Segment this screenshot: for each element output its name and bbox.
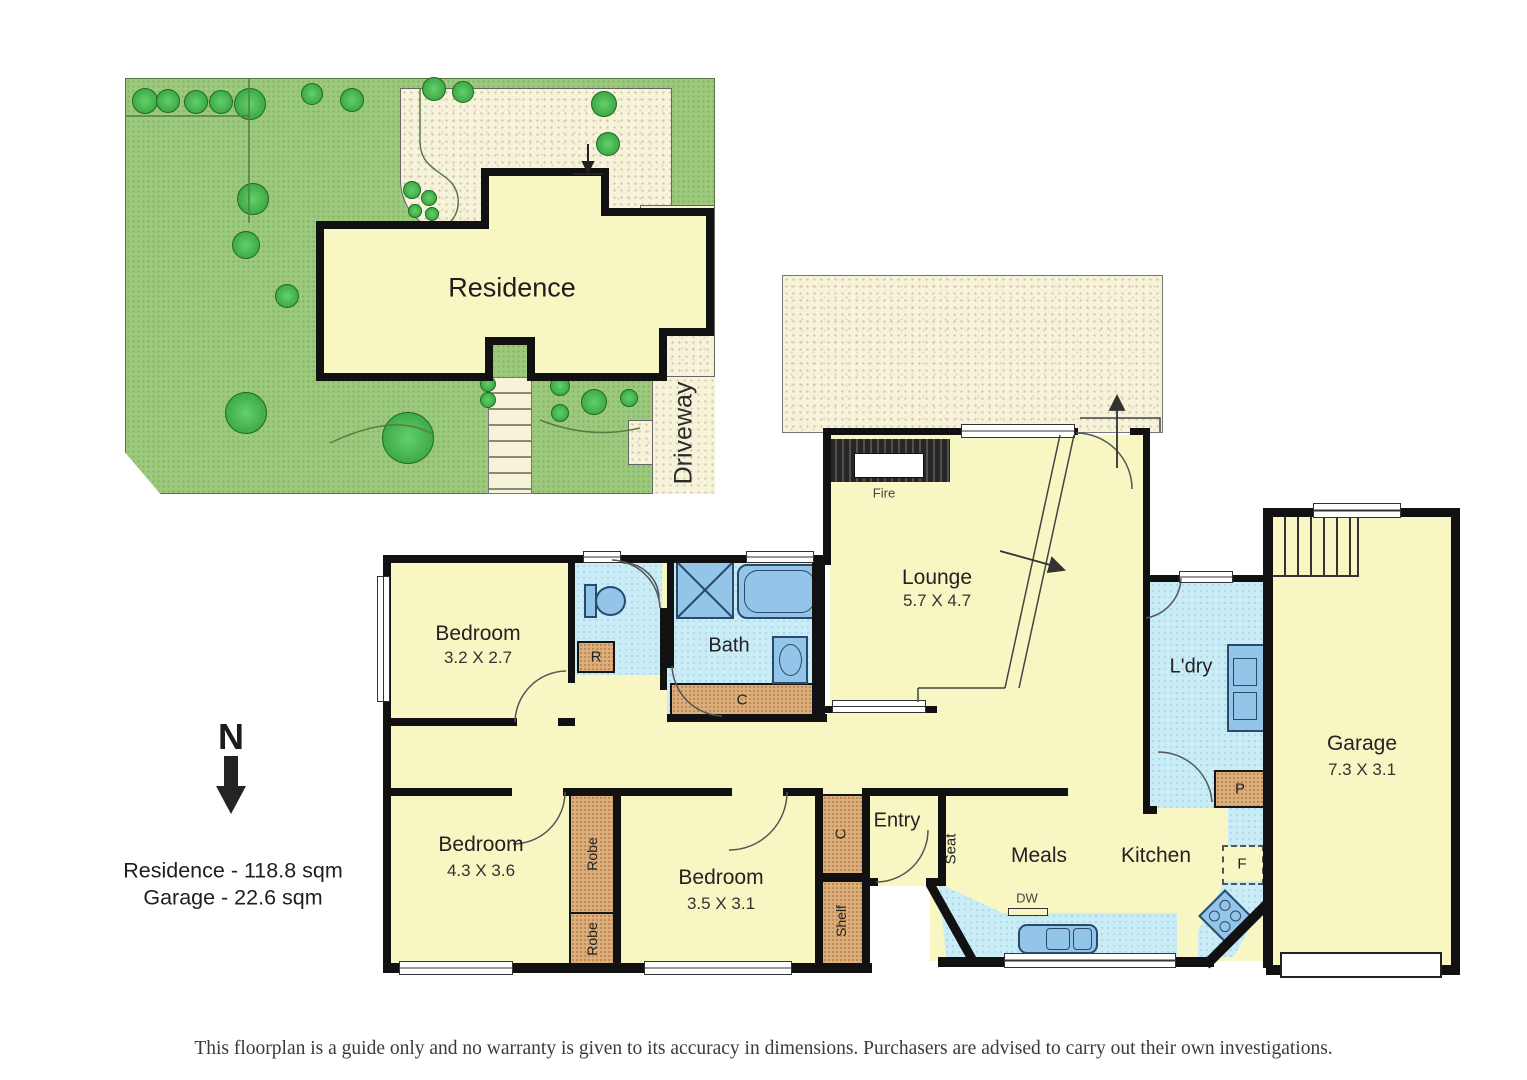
tree-icon — [452, 81, 474, 103]
tree-icon — [550, 376, 570, 396]
trough-bowl1 — [1233, 658, 1257, 686]
tree-icon — [591, 91, 617, 117]
north-label: N — [218, 716, 244, 758]
window — [399, 961, 513, 975]
floorplan-canvas: Residence Driveway N Residence - 118.8 s… — [0, 0, 1527, 1080]
window — [644, 961, 792, 975]
bedroom1-label: Bedroom — [435, 622, 520, 646]
bedroom2-dims: 4.3 X 3.6 — [447, 861, 515, 881]
disclaimer-text: This floorplan is a guide only and no wa… — [0, 1038, 1527, 1060]
wall — [1451, 508, 1460, 975]
trough-bowl2 — [1233, 692, 1257, 720]
tree-icon — [209, 90, 233, 114]
window — [1313, 503, 1401, 518]
tree-icon — [340, 88, 364, 112]
window — [961, 424, 1075, 438]
bedroom3-dims: 3.5 X 3.1 — [687, 894, 755, 914]
tree-icon — [184, 90, 208, 114]
entry-label: Entry — [874, 810, 921, 833]
tree-icon — [156, 89, 180, 113]
wall — [862, 788, 1068, 796]
tree-icon — [422, 77, 446, 101]
dishwasher-ledge — [1008, 908, 1048, 916]
entry-cupboard-label: C — [833, 829, 850, 840]
tree-icon — [382, 412, 434, 464]
garage-door — [1280, 952, 1442, 978]
wall — [1143, 806, 1157, 814]
tree-icon — [232, 231, 260, 259]
window — [377, 576, 390, 702]
wall — [1173, 957, 1214, 967]
basin-bowl — [779, 644, 802, 676]
wall — [660, 608, 667, 690]
wall — [862, 878, 878, 886]
north-arrow — [216, 756, 246, 814]
bedroom1-dims: 3.2 X 2.7 — [444, 648, 512, 668]
meals-label: Meals — [1011, 844, 1067, 868]
driveway-label: Driveway — [670, 382, 699, 485]
wall — [926, 878, 940, 886]
site-residence-label: Residence — [448, 273, 576, 304]
tree-icon — [596, 132, 620, 156]
tree-icon — [480, 376, 496, 392]
garage-label: Garage — [1327, 732, 1397, 756]
wall — [667, 714, 827, 722]
tree-icon — [301, 83, 323, 105]
residence-area-text: Residence - 118.8 sqm — [123, 859, 343, 884]
patio — [782, 275, 1163, 433]
pantry-label: P — [1235, 781, 1245, 798]
fireplace-label: Fire — [873, 486, 895, 501]
tree-icon — [234, 88, 266, 120]
site-paving-notch — [628, 420, 654, 465]
wall — [620, 788, 732, 796]
fridge-label: F — [1237, 856, 1246, 873]
kitchen-label: Kitchen — [1121, 844, 1191, 868]
wall — [558, 718, 575, 726]
window — [1004, 953, 1176, 968]
window — [746, 551, 814, 563]
window — [832, 700, 926, 713]
wall — [938, 957, 1010, 967]
tree-icon — [225, 392, 267, 434]
sink-bowl2 — [1073, 928, 1092, 950]
wall — [383, 718, 517, 726]
seat-label: Seat — [943, 834, 960, 865]
bathtub-inner — [744, 570, 815, 613]
tree-icon — [132, 88, 158, 114]
shower — [676, 561, 734, 619]
wall — [812, 556, 825, 714]
wall — [383, 788, 512, 796]
site-paving — [400, 88, 672, 235]
wall — [1263, 508, 1273, 968]
lounge-dims: 5.7 X 4.7 — [903, 591, 971, 611]
wall — [823, 435, 831, 565]
garage-dims: 7.3 X 3.1 — [1328, 760, 1396, 780]
tree-icon — [581, 389, 607, 415]
tree-icon — [421, 190, 437, 206]
tree-icon — [551, 404, 569, 422]
wall — [1143, 428, 1150, 584]
wall — [613, 794, 621, 970]
lounge-label: Lounge — [902, 566, 972, 590]
window — [583, 551, 621, 563]
wall — [667, 556, 674, 668]
garage-area-text: Garage - 22.6 sqm — [143, 886, 322, 911]
robe2-label: Robe — [584, 922, 600, 955]
window — [1179, 571, 1233, 583]
robe1-label: Robe — [584, 837, 600, 870]
bath-label: Bath — [708, 635, 749, 658]
sink-bowl1 — [1046, 928, 1070, 950]
kitchen-bench-right — [1228, 806, 1263, 846]
shelf-label: Shelf — [833, 905, 849, 937]
bedroom2-label: Bedroom — [438, 833, 523, 857]
wall — [1143, 582, 1150, 810]
wall — [568, 563, 575, 683]
tree-icon — [425, 207, 439, 221]
tree-icon — [403, 181, 421, 199]
laundry-label: L'dry — [1170, 656, 1213, 679]
tree-icon — [275, 284, 299, 308]
bath-cupboard-label: C — [737, 692, 748, 709]
tree-icon — [620, 389, 638, 407]
entry-porch-notch — [870, 886, 930, 963]
site-paving-right — [640, 205, 715, 377]
wall — [783, 788, 817, 796]
fireplace-hearth — [854, 453, 924, 478]
toilet-bowl — [595, 586, 626, 616]
tree-icon — [480, 392, 496, 408]
tree-icon — [408, 204, 422, 218]
dishwasher-label: DW — [1016, 891, 1038, 906]
garage-stairs — [1273, 517, 1359, 577]
bedroom3-label: Bedroom — [678, 866, 763, 890]
robe-r-label: R — [591, 649, 602, 666]
tree-icon — [237, 183, 269, 215]
